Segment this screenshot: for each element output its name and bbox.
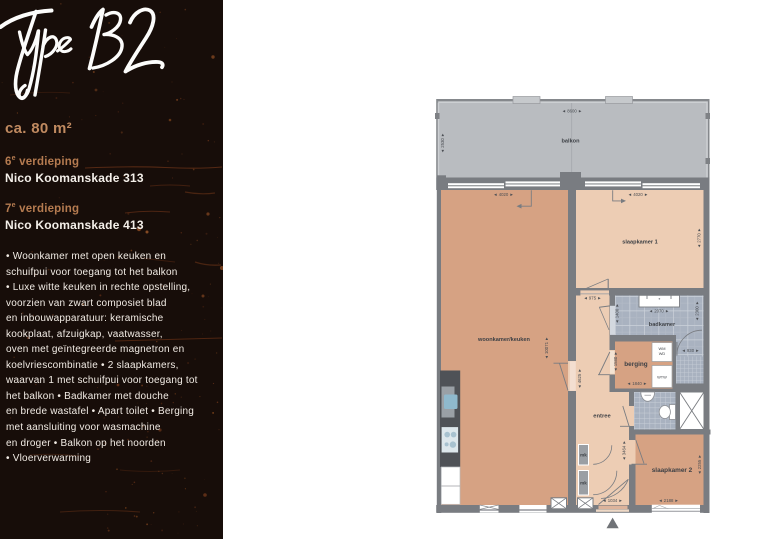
svg-text:slaapkamer 2: slaapkamer 2	[652, 467, 693, 474]
svg-text:◄ 2300 ►: ◄ 2300 ►	[695, 301, 700, 321]
svg-text:◄ 4020 ►: ◄ 4020 ►	[628, 192, 648, 197]
svg-text:◄ 2070 ►: ◄ 2070 ►	[649, 309, 669, 314]
svg-text:◄ 10071 ►: ◄ 10071 ►	[544, 337, 549, 360]
svg-text:berging: berging	[624, 361, 648, 368]
svg-text:◄ 1840 ►: ◄ 1840 ►	[627, 381, 647, 386]
svg-text:◄ 975 ►: ◄ 975 ►	[583, 296, 601, 301]
svg-text:badkamer: badkamer	[649, 322, 676, 328]
svg-text:◄ 2188 ►: ◄ 2188 ►	[658, 498, 678, 503]
svg-text:◄ 8600 ►: ◄ 8600 ►	[562, 109, 582, 114]
svg-text:WD: WD	[659, 351, 666, 356]
svg-text:entree: entree	[593, 414, 611, 420]
svg-text:◄ 2770 ►: ◄ 2770 ►	[697, 228, 702, 248]
svg-text:◄ 1400 ►: ◄ 1400 ►	[615, 303, 620, 323]
svg-text:mk: mk	[580, 453, 587, 458]
svg-text:◄ 1034 ►: ◄ 1034 ►	[602, 498, 622, 503]
svg-text:◄ 2255 ►: ◄ 2255 ►	[697, 454, 702, 474]
svg-text:slaapkamer 1: slaapkamer 1	[622, 240, 657, 246]
svg-text:◄ 4020 ►: ◄ 4020 ►	[493, 192, 513, 197]
svg-text:balkon: balkon	[561, 139, 580, 145]
svg-text:◄ 3464 ►: ◄ 3464 ►	[621, 440, 626, 460]
svg-text:◄ 2530 ►: ◄ 2530 ►	[440, 133, 445, 153]
svg-text:◄ 1580 ►: ◄ 1580 ►	[613, 351, 618, 371]
svg-text:woonkamer/keuken: woonkamer/keuken	[477, 337, 531, 343]
svg-text:◄ 930 ►: ◄ 930 ►	[681, 348, 699, 353]
svg-text:WTW: WTW	[657, 375, 667, 380]
svg-text:◄ 4625 ►: ◄ 4625 ►	[577, 368, 582, 388]
svg-text:mk: mk	[580, 481, 587, 486]
